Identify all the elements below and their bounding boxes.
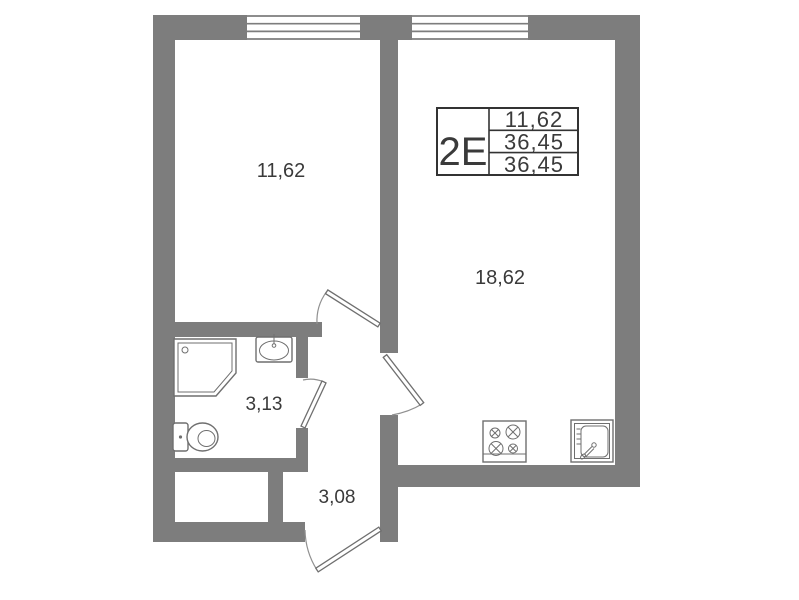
walls (153, 15, 640, 542)
door-swing-arc (317, 292, 327, 324)
floor-plan-drawing: 11,62 18,62 3,13 3,08 2Е 11,62 36,45 36,… (0, 0, 799, 600)
shower-tray-icon (174, 339, 236, 396)
door-leaf (383, 355, 423, 406)
info-value-3: 36,45 (504, 152, 564, 177)
window-right-icon (412, 14, 528, 41)
wall-bathroom-right-lower (296, 428, 308, 460)
door-bathroom-icon (301, 379, 326, 428)
window-left-icon (247, 14, 360, 41)
info-table: 2Е 11,62 36,45 36,45 (437, 107, 578, 177)
wall-kitchen-bottom (398, 465, 640, 487)
floor-plan: 11,62 18,62 3,13 3,08 2Е 11,62 36,45 36,… (0, 0, 799, 600)
wall-bathroom-bottom (175, 458, 308, 472)
wall-livingroom-bottom (175, 322, 322, 337)
entrance-door-icon (305, 527, 381, 572)
info-value-2: 36,45 (504, 130, 564, 155)
door-kitchen-living-icon (383, 355, 423, 415)
window-opening (412, 14, 528, 41)
room-label-bathroom: 3,13 (246, 394, 283, 415)
door-swing-arc (392, 404, 422, 415)
room-label-living: 11,62 (257, 160, 306, 182)
stove-icon (483, 421, 526, 462)
window-opening (247, 14, 360, 41)
room-label-kitchen-living: 18,62 (475, 267, 525, 289)
door-leaf (316, 527, 381, 572)
wall-right (615, 15, 640, 487)
door-leaf (325, 290, 380, 327)
wall-bottom (153, 522, 305, 542)
door-swing-arc (305, 530, 317, 570)
toilet-icon (173, 423, 218, 451)
door-swing-arc (303, 379, 324, 382)
washbasin-icon (256, 334, 292, 362)
wall-bathroom-right-upper (296, 337, 308, 378)
wall-top (153, 15, 640, 40)
wall-closet-right (268, 472, 283, 522)
door-living-room-icon (317, 290, 380, 327)
info-value-1: 11,62 (505, 107, 563, 132)
wall-left (153, 15, 175, 542)
kitchen-sink-icon (571, 420, 613, 462)
wall-middle-upper (380, 40, 398, 353)
wall-middle-lower (380, 415, 398, 542)
apartment-type: 2Е (439, 130, 488, 174)
room-label-hallway: 3,08 (319, 487, 356, 508)
door-leaf (301, 381, 326, 428)
